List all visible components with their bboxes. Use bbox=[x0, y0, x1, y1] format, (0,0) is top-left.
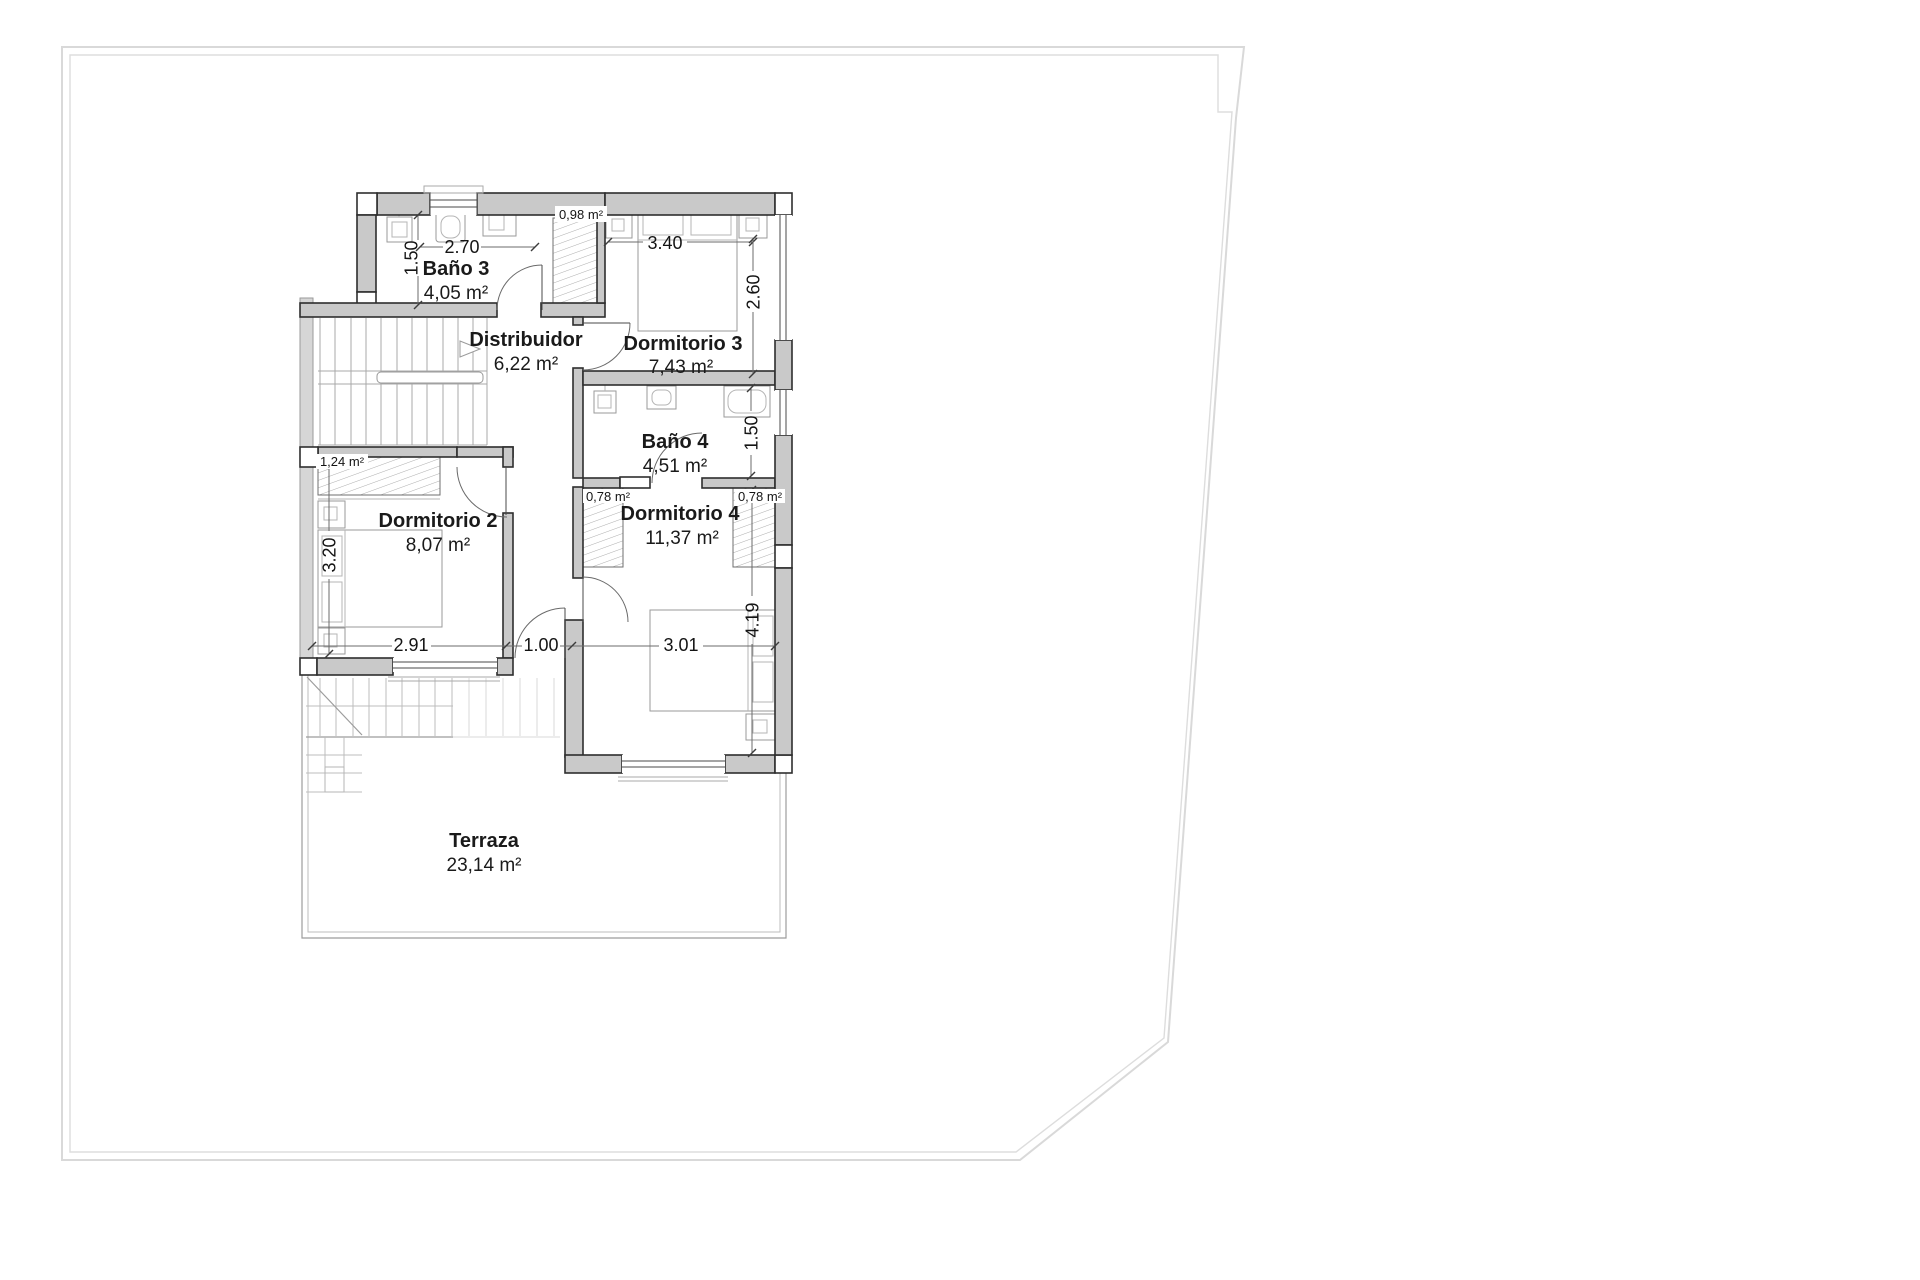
nightstand-icon bbox=[746, 714, 777, 740]
sink-icon bbox=[594, 391, 616, 413]
dim-dorm3-width: 3.40 bbox=[647, 233, 682, 253]
nightstand-icon bbox=[318, 501, 345, 528]
floor-plan-drawing: Baño 3 4,05 m² Distribuidor 6,22 m² Dorm… bbox=[0, 0, 1920, 1280]
room-area-bano3: 4,05 m² bbox=[424, 283, 488, 304]
dim-dorm2-depth: 3.20 bbox=[319, 537, 339, 572]
stairwell-exterior-wall bbox=[300, 298, 313, 658]
room-label-dormitorio2: Dormitorio 2 bbox=[379, 510, 498, 532]
closet-label-dorm2: 1,24 m² bbox=[320, 454, 365, 469]
window-block bbox=[775, 545, 792, 568]
wall-corner-block bbox=[775, 193, 792, 215]
bano4-fixtures bbox=[594, 385, 770, 417]
nightstand-icon bbox=[318, 628, 345, 654]
wall-corner-block bbox=[300, 447, 318, 467]
room-label-bano3: Baño 3 bbox=[423, 258, 490, 280]
window-dorm3-right bbox=[775, 215, 792, 340]
dim-dorm4-depth: 4.19 bbox=[742, 602, 762, 637]
window-bano4-right bbox=[775, 390, 792, 435]
nightstand-icon bbox=[739, 212, 767, 238]
terraza-grid-cell bbox=[325, 767, 344, 792]
room-area-dormitorio3: 7,43 m² bbox=[649, 357, 713, 378]
terraza-area bbox=[302, 674, 786, 938]
terraza-lower-grid bbox=[306, 737, 362, 792]
dim-dorm2-width: 2.91 bbox=[393, 635, 428, 655]
door-dorm4 bbox=[583, 577, 628, 622]
door-bano3 bbox=[497, 265, 542, 310]
room-area-dormitorio2: 8,07 m² bbox=[406, 535, 470, 556]
closet-label-dorm4-right: 0,78 m² bbox=[738, 489, 783, 504]
dim-passage-width: 1.00 bbox=[523, 635, 558, 655]
terraza-pergola-grid bbox=[306, 677, 560, 737]
stair-handrail bbox=[377, 372, 483, 383]
terraza-railing-outer bbox=[302, 674, 786, 938]
dim-dorm4-width: 3.01 bbox=[663, 635, 698, 655]
dim-dorm3-depth: 2.60 bbox=[743, 274, 763, 309]
dim-bano4-depth: 1.50 bbox=[741, 415, 761, 450]
dim-bano3-depth: 1.50 bbox=[401, 240, 421, 275]
room-area-distribuidor: 6,22 m² bbox=[494, 354, 558, 375]
toilet-icon bbox=[387, 217, 412, 242]
room-label-terraza: Terraza bbox=[449, 830, 520, 852]
room-label-dormitorio3: Dormitorio 3 bbox=[624, 333, 743, 355]
bathtub-icon bbox=[724, 386, 770, 417]
nightstand-icon bbox=[606, 213, 632, 238]
door-leaf bbox=[620, 477, 650, 488]
closet-label-top: 0,98 m² bbox=[559, 207, 604, 222]
window-dorm2-bottom bbox=[388, 658, 500, 681]
wall-corner-block bbox=[300, 658, 317, 675]
closet-label-dorm4-left: 0,78 m² bbox=[586, 489, 631, 504]
toilet-icon bbox=[647, 386, 676, 409]
room-label-distribuidor: Distribuidor bbox=[469, 329, 583, 351]
terraza-railing-inner bbox=[308, 674, 780, 932]
dorm3-furniture bbox=[606, 211, 767, 331]
staircase bbox=[318, 318, 487, 445]
room-area-bano4: 4,51 m² bbox=[643, 456, 707, 477]
floor-plan-page: Baño 3 4,05 m² Distribuidor 6,22 m² Dorm… bbox=[0, 0, 1920, 1280]
room-area-dormitorio4: 11,37 m² bbox=[645, 528, 719, 549]
wardrobe-top bbox=[553, 218, 597, 303]
wall-corner-block bbox=[775, 755, 792, 773]
room-label-dormitorio4: Dormitorio 4 bbox=[621, 503, 741, 525]
dim-bano3-width: 2.70 bbox=[444, 237, 479, 257]
room-label-bano4: Baño 4 bbox=[642, 431, 710, 453]
window-dorm4-bottom bbox=[618, 755, 728, 781]
window-bano3-top bbox=[424, 186, 483, 215]
bed-icon bbox=[638, 211, 737, 331]
room-area-terraza: 23,14 m² bbox=[447, 855, 522, 876]
wall-corner-block bbox=[357, 193, 377, 215]
